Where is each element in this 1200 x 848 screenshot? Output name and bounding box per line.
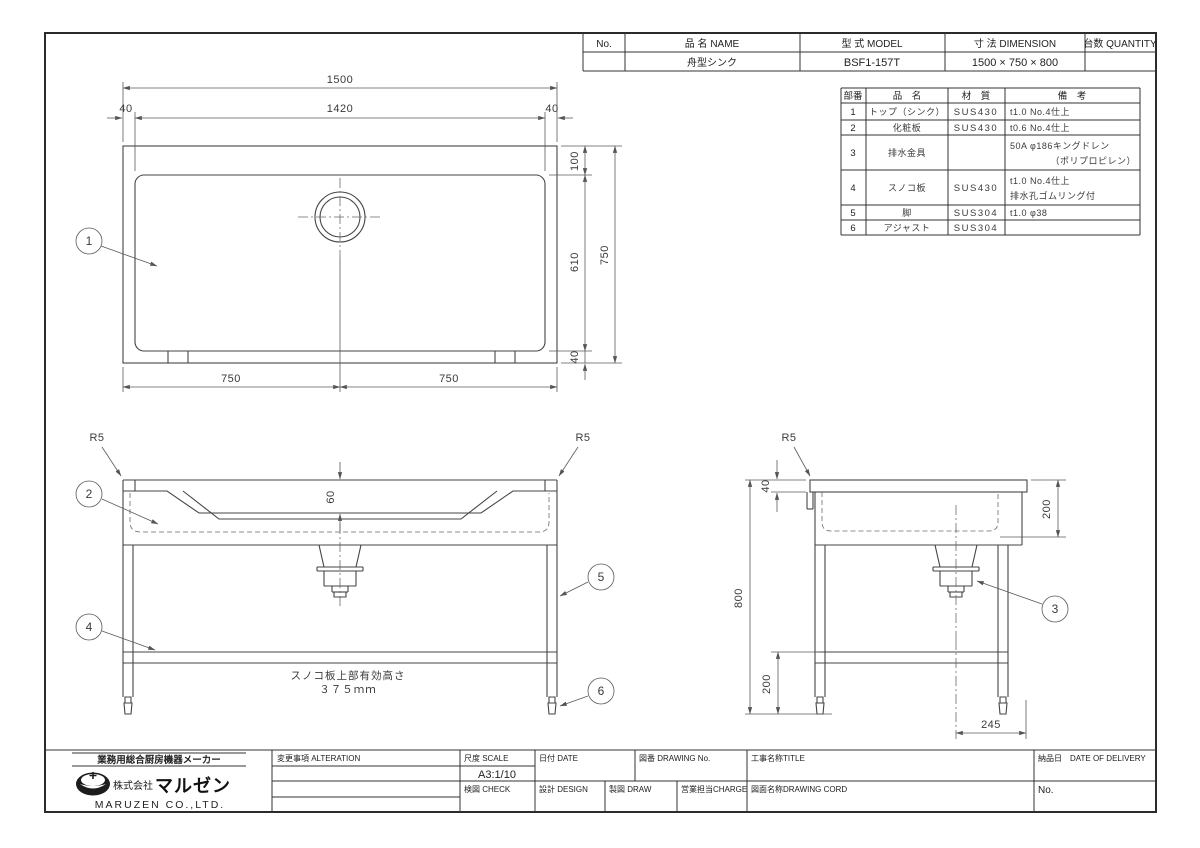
company-name-en: MARUZEN CO.,LTD. [95,799,225,811]
part-2-remarks: t0.6 No.4仕上 [1010,122,1070,133]
part-2-name: 化粧板 [893,122,922,133]
side-view: R5 40 800 200 200 245 [733,432,1068,739]
part-4-material: SUS430 [954,183,998,194]
part-1-remarks: t1.0 No.4仕上 [1010,106,1070,117]
plan-dim-100: 100 [569,151,581,171]
plan-dim-1500: 1500 [327,74,353,86]
part-2-num: 2 [850,123,855,134]
side-dimensions: 40 800 200 200 245 [733,460,1066,739]
engineering-drawing: No. 品 名 NAME 型 式 MODEL 寸 法 DIMENSION 台数 … [0,0,1200,848]
plan-dim-40-bottom: 40 [569,350,581,363]
balloon-3: 3 [977,581,1068,622]
product-name: 舟型シンク [687,56,737,69]
product-model: BSF1-157T [844,57,901,69]
plan-dim-750-left: 750 [221,373,241,385]
title-label: 工事名称TITLE [751,753,805,763]
plan-dim-40-right: 40 [545,103,558,115]
side-r5-label: R5 [781,432,796,444]
balloon-4: 4 [76,614,155,650]
front-dim-60: 60 [325,462,340,531]
side-dim-200-bottom: 200 [761,674,773,694]
front-r5-left-label: R5 [89,432,104,444]
check-label: 検図 CHECK [464,784,511,794]
drawing-sheet: No. 品 名 NAME 型 式 MODEL 寸 法 DIMENSION 台数 … [0,0,1200,848]
balloon-5-number: 5 [598,570,605,584]
plan-dim-610: 610 [569,252,581,272]
part-1-material: SUS430 [954,107,998,118]
parts-col-name: 品 名 [893,90,922,102]
side-dim-800: 800 [733,588,745,608]
header-col-name: 品 名 NAME [685,37,740,50]
part-4-remarks-2: 排水孔ゴムリング付 [1010,190,1096,201]
plan-outline [123,146,557,392]
balloon-2: 2 [76,481,158,524]
part-1-num: 1 [850,107,855,118]
draw-label: 製図 DRAW [609,784,652,794]
drawing-cord-label: 図面名称DRAWING CORD [751,784,847,794]
part-5-num: 5 [850,208,855,219]
header-col-no: No. [596,39,612,50]
part-3-num: 3 [850,148,855,159]
balloon-6-number: 6 [598,684,605,698]
header-col-dimension: 寸 法 DIMENSION [974,37,1056,50]
front-r5-right-label: R5 [575,432,590,444]
no-label: No. [1038,785,1054,796]
date-label: 日付 DATE [539,753,578,763]
front-note-line1: スノコ板上部有効高さ [291,669,406,682]
design-label: 設計 DESIGN [539,784,588,794]
maruzen-logo-icon [76,772,110,796]
charge-label: 営業担当CHARGE [681,784,747,794]
plan-dim-40-left: 40 [119,103,132,115]
parts-table: 部番 品 名 材 質 備 考 1 トップ（シンク） SUS430 t1.0 No… [841,88,1140,235]
part-5-material: SUS304 [954,208,998,219]
part-4-remarks-1: t1.0 No.4仕上 [1010,175,1070,186]
company-logo: 業務用総合厨房機器メーカー 株式会社 マルゼン MARUZEN CO.,LTD. [72,753,246,811]
balloon-2-number: 2 [86,487,93,501]
header-col-model: 型 式 MODEL [841,37,903,50]
parts-col-remarks: 備 考 [1058,90,1087,102]
part-2-material: SUS430 [954,123,998,134]
drawing-no-label: 図番 DRAWING No. [639,753,710,763]
side-dim-40: 40 [760,479,772,492]
front-radius-left: R5 [89,432,121,476]
scale-label: 尺度 SCALE [464,753,508,763]
part-5-name: 脚 [902,208,912,218]
product-dimension: 1500 × 750 × 800 [972,57,1058,69]
scale-value: A3:1/10 [478,769,516,781]
header-col-quantity: 台数 QUANTITY [1083,37,1157,50]
front-note-line2: ３７５ｍｍ [319,684,377,696]
company-name-logo: マルゼン [155,775,231,796]
balloon-4-number: 4 [86,620,93,634]
balloon-3-number: 3 [1052,602,1059,616]
side-radius: R5 [781,432,810,476]
side-outline [807,480,1027,714]
side-drain [933,505,979,640]
parts-col-num: 部番 [843,90,863,102]
plan-dim-750-right: 750 [439,373,459,385]
front-dim-60-label: 60 [325,490,337,503]
balloon-5: 5 [560,564,614,596]
part-4-num: 4 [850,183,855,194]
delivery-label: 納品日 DATE OF DELIVERY [1038,753,1146,763]
plan-view: 1500 1420 40 40 100 610 40 750 750 750 [76,74,622,392]
balloon-1: 1 [76,228,157,266]
side-dim-245: 245 [981,719,1001,731]
balloon-6: 6 [560,678,614,706]
part-3-name: 排水金具 [888,147,926,158]
part-6-material: SUS304 [954,223,998,234]
part-6-num: 6 [850,223,855,234]
parts-col-material: 材 質 [962,90,991,102]
front-drain [317,524,363,606]
alteration-label: 変更事項 ALTERATION [277,753,360,763]
company-prefix: 株式会社 [113,779,153,792]
front-radius-right: R5 [559,432,591,476]
part-4-name: スノコ板 [888,182,926,193]
part-6-name: アジャスト [884,223,931,233]
company-tagline: 業務用総合厨房機器メーカー [96,754,221,766]
part-1-name: トップ（シンク） [869,107,945,117]
part-3-remarks-2: （ポリプロピレン） [1050,156,1136,166]
balloon-1-number: 1 [86,234,93,248]
part-5-remarks: t1.0 φ38 [1010,208,1047,218]
part-3-remarks-1: 50A φ186キングドレン [1010,140,1110,151]
front-view: 60 R5 R5 2 4 5 6 スノコ板上部有効 [76,432,614,714]
plan-dim-750-depth: 750 [599,245,611,265]
side-dim-200-top: 200 [1041,499,1053,519]
plan-dim-1420: 1420 [327,103,353,115]
header-table: No. 品 名 NAME 型 式 MODEL 寸 法 DIMENSION 台数 … [583,33,1157,71]
